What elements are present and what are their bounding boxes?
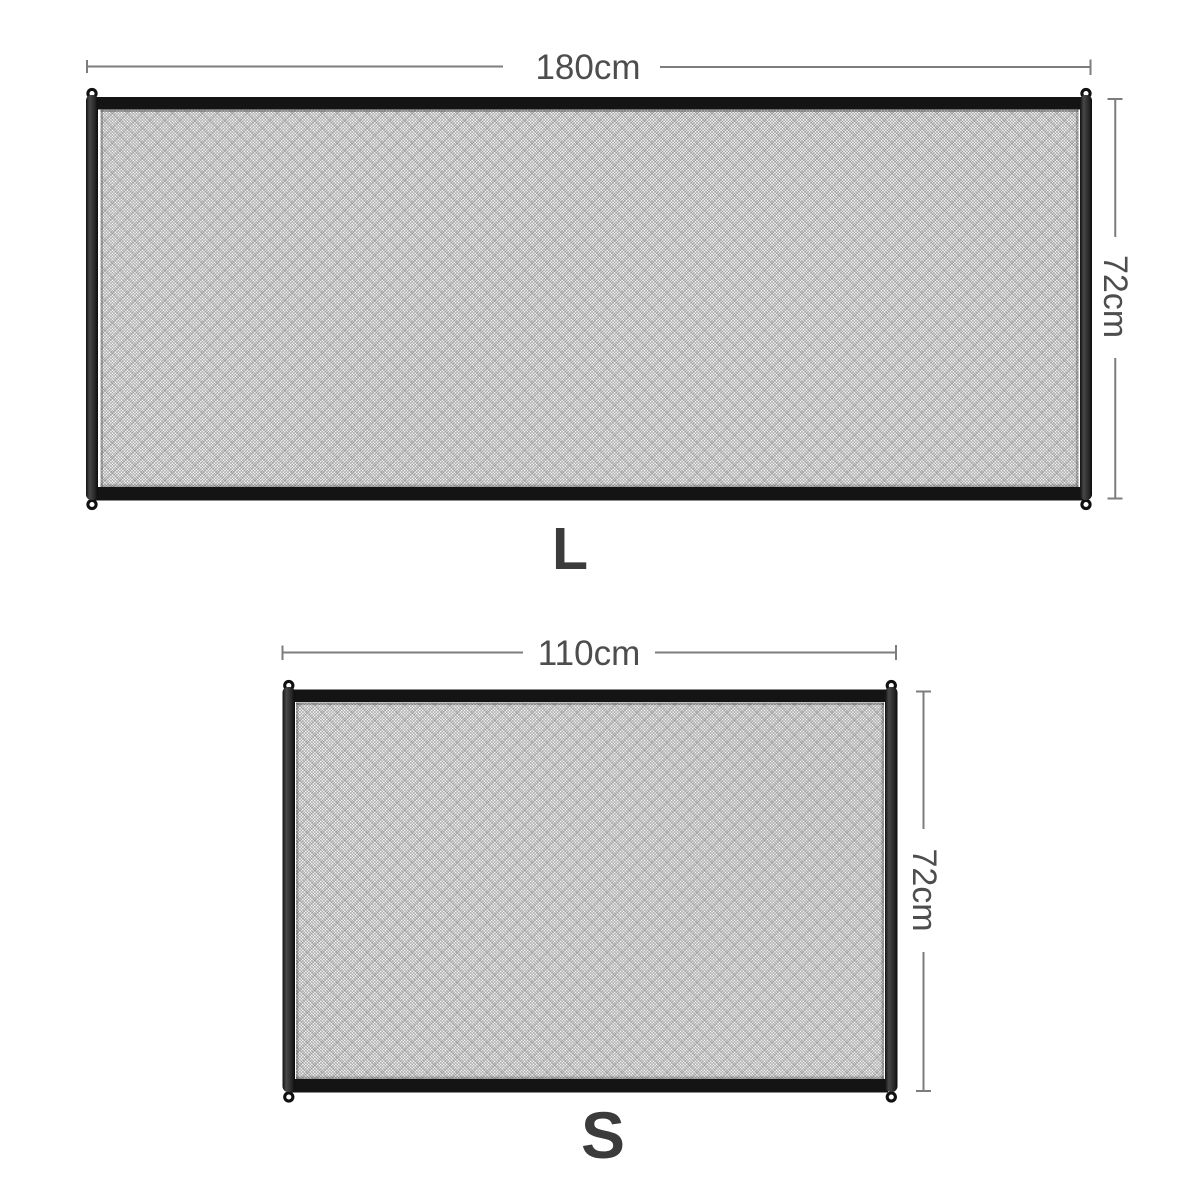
svg-text:180cm: 180cm xyxy=(535,48,640,87)
svg-text:72cm: 72cm xyxy=(905,848,943,931)
svg-text:S: S xyxy=(581,1098,625,1172)
svg-text:L: L xyxy=(552,516,588,582)
svg-text:72cm: 72cm xyxy=(1096,255,1134,338)
svg-text:110cm: 110cm xyxy=(538,634,640,673)
